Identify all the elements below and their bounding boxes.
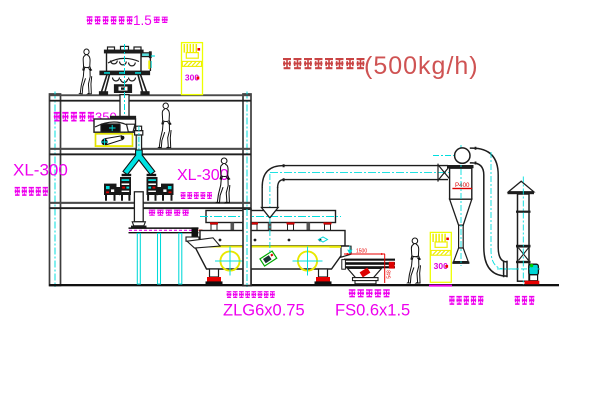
svg-text:ZLG6x0.75: ZLG6x0.75 <box>223 302 305 320</box>
svg-text:548: 548 <box>386 270 392 279</box>
svg-text:1.5: 1.5 <box>133 13 152 28</box>
svg-text:(500kg/h): (500kg/h) <box>364 52 479 80</box>
svg-text:XL-300: XL-300 <box>13 161 68 180</box>
svg-text:FS0.6x1.5: FS0.6x1.5 <box>335 302 410 320</box>
svg-text:1500: 1500 <box>356 249 367 255</box>
